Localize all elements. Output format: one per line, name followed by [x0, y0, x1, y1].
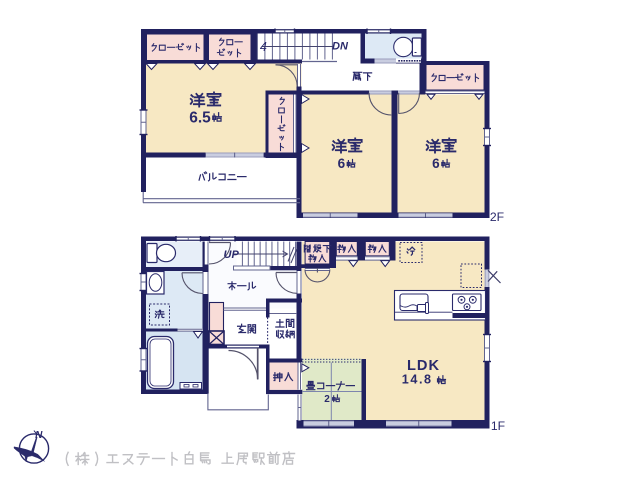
svg-text:6: 6	[338, 156, 346, 171]
svg-text:2F: 2F	[490, 210, 504, 224]
svg-text:2: 2	[324, 394, 330, 405]
svg-text:1F: 1F	[491, 419, 505, 433]
svg-text:UP: UP	[224, 249, 240, 261]
svg-text:14.8: 14.8	[402, 373, 433, 387]
svg-text:4: 4	[260, 40, 267, 54]
svg-text:DN: DN	[332, 41, 349, 53]
svg-text:6.5: 6.5	[189, 110, 211, 127]
svg-text:6: 6	[432, 156, 440, 171]
svg-text:LDK: LDK	[407, 358, 440, 374]
